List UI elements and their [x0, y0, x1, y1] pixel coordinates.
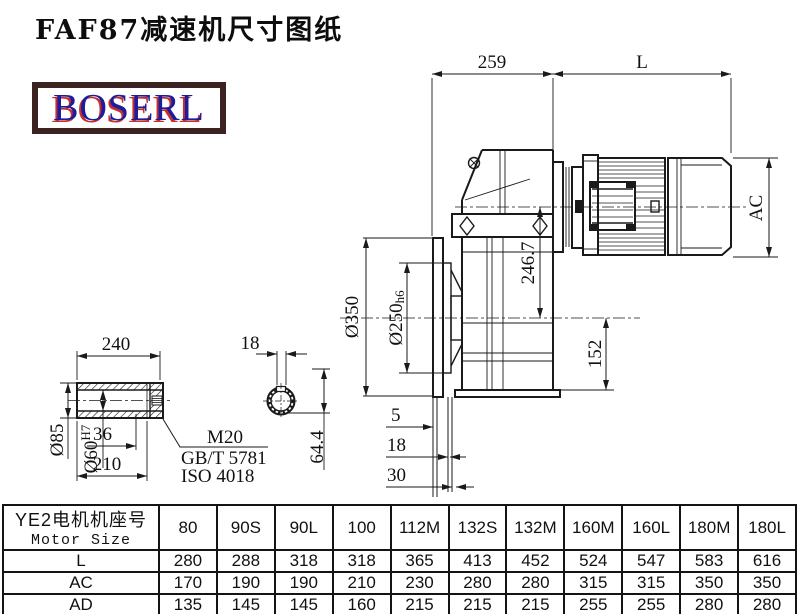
cell: 547: [622, 550, 680, 572]
cell: 318: [333, 550, 391, 572]
standard-iso: ISO 4018: [181, 466, 254, 487]
col-112m: 112M: [391, 505, 449, 550]
cell: 288: [217, 550, 275, 572]
cell: 350: [738, 572, 796, 594]
table-header-row: YE2电机机座号 Motor Size 80 90S 90L 100 112M …: [3, 505, 796, 550]
table-row-AC: AC 170 190 190 210 230 280 280 315 315 3…: [3, 572, 796, 594]
cell: 365: [391, 550, 449, 572]
cell: 190: [275, 572, 333, 594]
mounting-bar: [452, 214, 553, 237]
dim-30: 30: [387, 465, 406, 486]
cell: 616: [738, 550, 796, 572]
main-view-dimensions: 259 L AC 246.7 Ø350 Ø250h6 152 5 18: [342, 52, 778, 487]
col-132s: 132S: [449, 505, 507, 550]
cell: 413: [449, 550, 507, 572]
dim-od-85: Ø85: [47, 424, 68, 457]
col-132m: 132M: [506, 505, 564, 550]
dimension-drawing: 259 L AC 246.7 Ø350 Ø250h6 152 5 18: [0, 0, 800, 505]
cell: 170: [159, 572, 217, 594]
cell: 280: [738, 594, 796, 614]
dim-AC: AC: [746, 195, 767, 221]
drawing-sheet: FAF87减速机尺寸图纸 BOSERL: [0, 0, 800, 614]
cell: 255: [564, 594, 622, 614]
cell: 452: [506, 550, 564, 572]
col-180m: 180M: [680, 505, 738, 550]
dim-64-4: 64.4: [307, 430, 328, 464]
cell: 280: [449, 572, 507, 594]
col-160l: 160L: [622, 505, 680, 550]
cell: 210: [333, 572, 391, 594]
dim-L: L: [636, 52, 648, 73]
gearbox-housing: [452, 150, 560, 397]
row-label-AD: AD: [3, 594, 159, 614]
dim-5: 5: [391, 405, 401, 426]
cell: 318: [275, 550, 333, 572]
row-label-L: L: [3, 550, 159, 572]
cell: 145: [275, 594, 333, 614]
dim-flange-od: Ø350: [342, 296, 363, 338]
dim-259: 259: [478, 52, 507, 73]
stator-window: [590, 182, 635, 230]
motor: [455, 155, 748, 255]
cell: 350: [680, 572, 738, 594]
cell: 255: [622, 594, 680, 614]
col-90l: 90L: [275, 505, 333, 550]
col-160m: 160M: [564, 505, 622, 550]
table-row-L: L 280 288 318 318 365 413 452 524 547 58…: [3, 550, 796, 572]
coupling: [575, 200, 582, 213]
cell: 524: [564, 550, 622, 572]
bolt-hole-diamond: [460, 217, 474, 235]
cell: 583: [680, 550, 738, 572]
hollow-shaft-detail: 240 Ø85 Ø60H7 36 210 M20 GB/T 5781 ISO 4: [47, 334, 268, 487]
output-flange: [433, 238, 462, 497]
cell: 135: [159, 594, 217, 614]
table-row-AD: AD 135 145 145 160 215 215 215 255 255 2…: [3, 594, 796, 614]
cell: 160: [333, 594, 391, 614]
dim-spigot: Ø250h6: [386, 290, 407, 346]
motor-size-header: YE2电机机座号 Motor Size: [3, 505, 159, 550]
col-80: 80: [159, 505, 217, 550]
cell: 280: [506, 572, 564, 594]
thread-m20: M20: [207, 427, 243, 448]
housing-base-plate: [455, 390, 560, 397]
dim-keyway-18: 18: [241, 333, 260, 354]
cell: 215: [449, 594, 507, 614]
cell: 315: [622, 572, 680, 594]
cell: 215: [391, 594, 449, 614]
dim-240: 240: [102, 334, 131, 355]
cell: 230: [391, 572, 449, 594]
cell: 280: [159, 550, 217, 572]
col-180l: 180L: [738, 505, 796, 550]
cell: 145: [217, 594, 275, 614]
dim-36: 36: [93, 424, 112, 445]
motor-size-table: YE2电机机座号 Motor Size 80 90S 90L 100 112M …: [2, 504, 797, 614]
dim-246-7: 246.7: [518, 242, 539, 285]
row-label-AC: AC: [3, 572, 159, 594]
col-100: 100: [333, 505, 391, 550]
motor-fins: [598, 162, 665, 250]
cell: 280: [680, 594, 738, 614]
motor-size-header-cn: YE2电机机座号: [4, 506, 158, 532]
dim-152: 152: [585, 340, 606, 369]
dim-210: 210: [93, 454, 122, 475]
cell: 190: [217, 572, 275, 594]
fan-cover: [668, 158, 731, 255]
cell: 315: [564, 572, 622, 594]
thread-callout: M20 GB/T 5781 ISO 4018: [163, 419, 268, 487]
cell: 215: [506, 594, 564, 614]
col-90s: 90S: [217, 505, 275, 550]
motor-size-header-en: Motor Size: [4, 532, 158, 549]
dim-18-step: 18: [387, 435, 406, 456]
